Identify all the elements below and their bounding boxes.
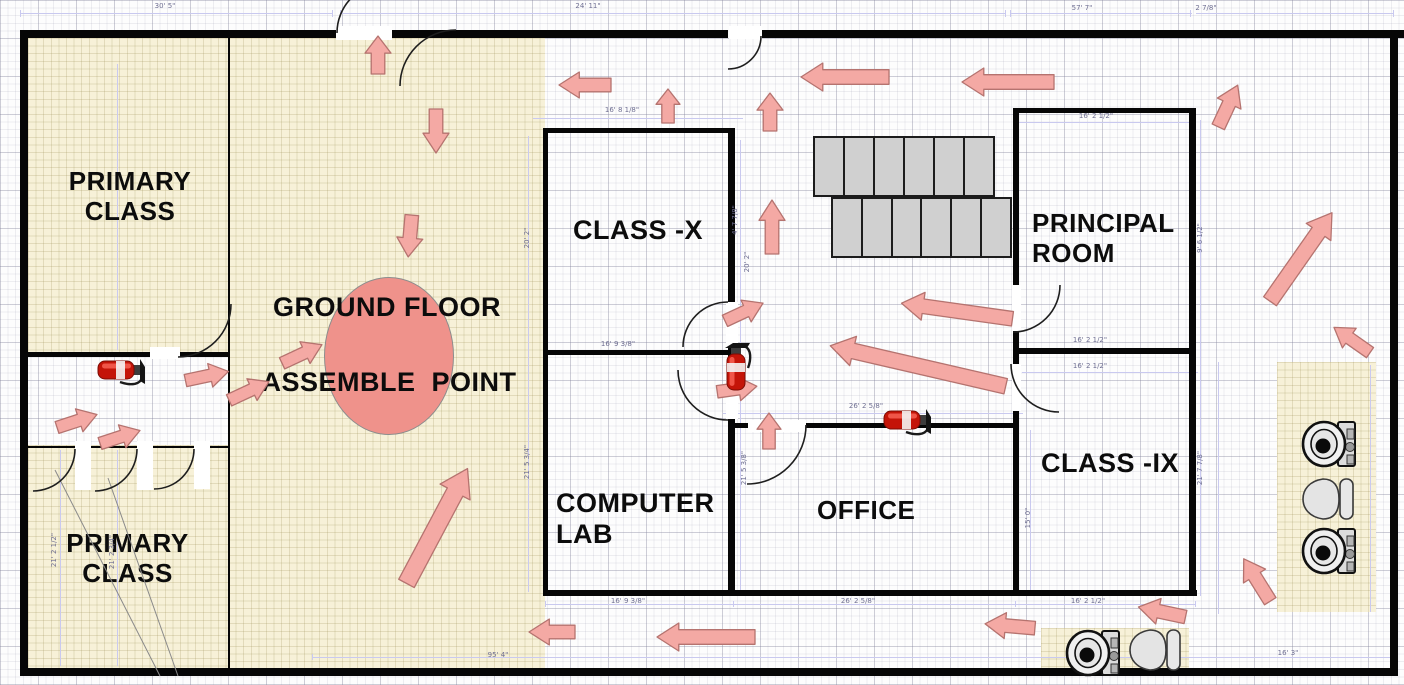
- dimension-label: 21' 2 1/2": [50, 533, 58, 567]
- evacuation-arrow: [757, 93, 783, 131]
- door-swing-arc: [154, 449, 194, 489]
- overlay-svg: [0, 0, 1404, 685]
- dimension-label: 15' 0": [1024, 508, 1032, 529]
- dimension-label: 20' 2": [743, 252, 751, 273]
- evacuation-arrow: [391, 461, 482, 592]
- floor-plan-canvas: PRIMARY CLASS PRIMARY CLASS CLASS -X COM…: [0, 0, 1404, 685]
- dimension-label: 16' 2 1/2": [1071, 597, 1105, 605]
- evacuation-arrow: [1206, 80, 1249, 133]
- door-swing-arc: [33, 449, 75, 491]
- evacuation-arrow: [759, 200, 785, 254]
- evacuation-arrow: [1327, 318, 1377, 363]
- evacuation-arrow: [559, 72, 611, 98]
- door-swing-arc: [683, 302, 728, 347]
- dimension-label: 24' 11": [575, 2, 600, 10]
- evacuation-arrow: [395, 214, 425, 258]
- evacuation-arrow: [900, 289, 1015, 332]
- door-swing-arc: [178, 304, 231, 357]
- door-swing-arc: [400, 30, 456, 86]
- door-swing-arc: [1013, 285, 1060, 332]
- dimension-label: 21' 2 3/4": [108, 535, 116, 569]
- toilet-icon: [1303, 529, 1355, 573]
- evacuation-arrow: [529, 619, 575, 645]
- evacuation-arrow: [277, 334, 327, 374]
- evacuation-arrow: [1136, 594, 1188, 629]
- evacuation-arrow: [224, 371, 274, 411]
- dimension-label: 95' 4": [488, 651, 509, 659]
- dimension-label: 16' 3": [1278, 649, 1299, 657]
- sink-icon: [1303, 479, 1353, 519]
- evacuation-arrow: [720, 292, 768, 332]
- fire-extinguisher-icon: [884, 409, 931, 434]
- evacuation-arrow: [1258, 204, 1345, 310]
- evacuation-arrow: [657, 623, 755, 651]
- door-swing-arc: [337, 0, 387, 33]
- evacuation-arrow: [827, 331, 1009, 401]
- dimension-label: 26' 2 5/8": [841, 597, 875, 605]
- evacuation-arrow: [53, 403, 100, 439]
- dimension-label: 20' 2": [523, 228, 531, 249]
- dimension-label: 2 7/8": [1195, 4, 1216, 12]
- dimension-label: 16' 9 3/8": [611, 597, 645, 605]
- leader-line: [55, 470, 160, 676]
- dimension-label: 26' 2 5/8": [849, 402, 883, 410]
- dimension-label: 21' 5 3/4": [523, 445, 531, 479]
- door-swing-arc: [1011, 364, 1059, 412]
- dimension-label: 21' 5 3/8": [740, 451, 748, 485]
- evacuation-arrow: [757, 413, 781, 449]
- dimension-label: 30' 5": [155, 2, 176, 10]
- sink-icon: [1130, 630, 1180, 670]
- door-swing-arc: [747, 425, 806, 484]
- leader-line: [108, 478, 178, 676]
- evacuation-arrow: [183, 360, 231, 393]
- evacuation-arrow: [984, 611, 1036, 641]
- dimension-label: 21' 7 7/8": [1196, 451, 1204, 485]
- toilet-icon: [1303, 422, 1355, 466]
- dimension-label: 9' 6 1/2": [1196, 223, 1204, 253]
- dimension-label: 16' 8 1/8": [605, 106, 639, 114]
- evacuation-arrow: [656, 89, 680, 123]
- dimension-label: 16' 2 1/2": [1073, 336, 1107, 344]
- dimension-label: 16' 2 1/2": [1073, 362, 1107, 370]
- vector-overlay: [0, 0, 1404, 685]
- door-swing-arc: [95, 449, 137, 491]
- dimension-label: 57' 7": [1072, 4, 1093, 12]
- evacuation-arrow: [1233, 552, 1282, 608]
- evacuation-arrow: [801, 63, 889, 91]
- door-swing-arc: [728, 36, 761, 69]
- dimension-label: 4' 7 7/8": [731, 205, 739, 235]
- evacuation-arrow: [423, 109, 449, 153]
- evacuation-arrow: [365, 36, 391, 74]
- dimension-label: 16' 9 3/8": [601, 340, 635, 348]
- evacuation-arrow: [962, 68, 1054, 96]
- fire-extinguisher-icon: [98, 359, 145, 384]
- dimension-label: 16' 2 1/2": [1079, 112, 1113, 120]
- toilet-icon: [1067, 631, 1119, 675]
